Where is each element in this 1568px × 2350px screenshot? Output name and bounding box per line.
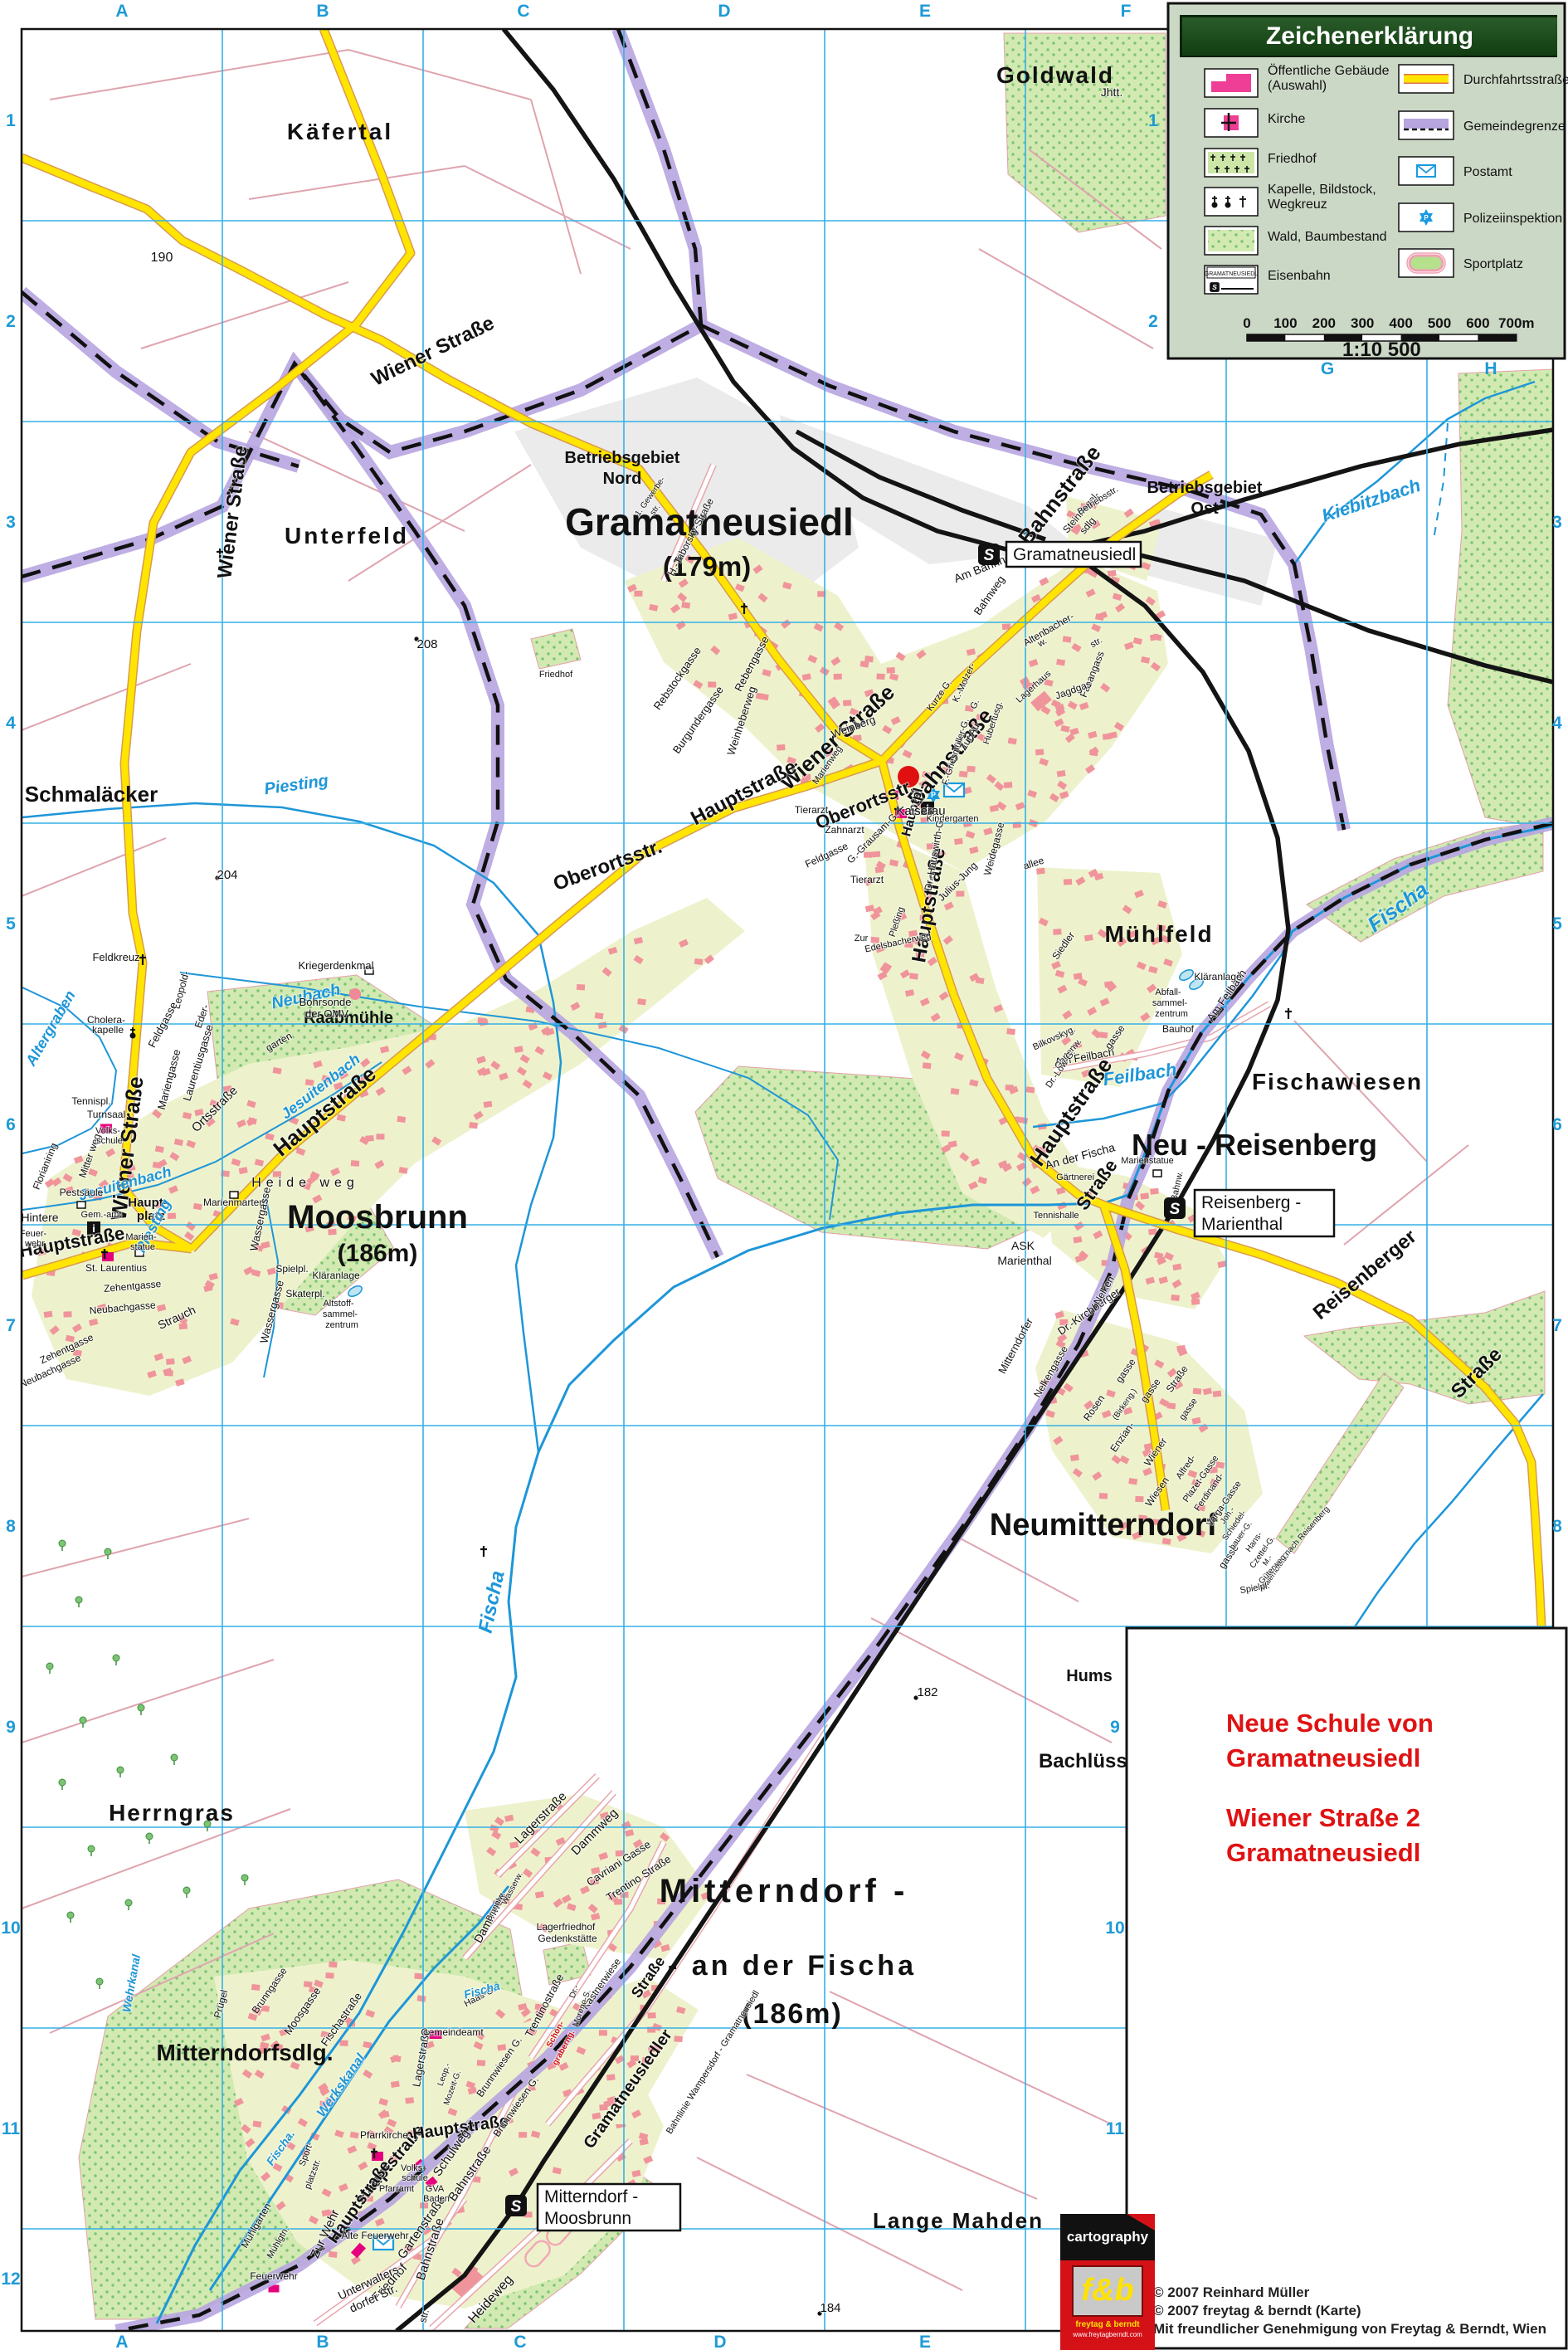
building bbox=[1004, 782, 1013, 788]
station-label: Mitterndorf - bbox=[544, 2187, 638, 2206]
grid-label: 9 bbox=[1110, 1718, 1120, 1737]
building bbox=[1099, 1493, 1108, 1499]
building bbox=[606, 2074, 616, 2080]
building bbox=[777, 744, 785, 751]
building bbox=[959, 771, 968, 778]
building bbox=[864, 656, 874, 662]
map-label: Schmaläcker bbox=[25, 782, 158, 807]
grid-label: B bbox=[316, 2, 329, 21]
building bbox=[325, 1972, 334, 1979]
building bbox=[1191, 1299, 1200, 1305]
building bbox=[405, 2097, 414, 2104]
building bbox=[1171, 1294, 1180, 1301]
legend-item-label: (Auswahl) bbox=[1268, 79, 1327, 93]
building bbox=[1064, 879, 1072, 885]
map-label: Mitterndorfsdlg. bbox=[156, 2040, 333, 2065]
legend-symbol-strasse bbox=[1399, 65, 1454, 93]
map-label: Moosbrunn bbox=[287, 1199, 468, 1236]
legend-symbol-kirche bbox=[1205, 109, 1258, 137]
map-label: (186m) bbox=[742, 1998, 843, 2030]
map-label: Gem.-amt bbox=[81, 1210, 122, 1220]
grid-label: 11 bbox=[2, 2119, 21, 2138]
grid-label: A bbox=[115, 2333, 128, 2350]
scalebar-tick-label: 300 bbox=[1351, 315, 1374, 331]
building bbox=[1053, 929, 1061, 935]
map-label: Tierarzt bbox=[795, 804, 829, 816]
map-label: 184 bbox=[820, 2301, 840, 2315]
map-label: Feuerwehr bbox=[250, 2270, 297, 2282]
scalebar-segment bbox=[1285, 334, 1323, 341]
building bbox=[365, 1135, 373, 1142]
grid-label: E bbox=[919, 2, 931, 21]
map-sheet: PiiKäfertalGoldwaldJhtt.UnterfeldGramatn… bbox=[0, 0, 1568, 2350]
map-label: Ost bbox=[1191, 500, 1219, 518]
scalebar-tick-label: 500 bbox=[1428, 315, 1451, 331]
building bbox=[351, 1160, 359, 1167]
grid-label: 4 bbox=[1552, 714, 1562, 733]
map-art bbox=[1153, 1170, 1161, 1177]
building bbox=[954, 838, 963, 845]
station-label: Marienthal bbox=[1201, 1215, 1283, 1234]
grid-label: A bbox=[115, 2, 128, 21]
map-label: Hintere bbox=[21, 1211, 58, 1224]
legend-symbol-kapelle bbox=[1205, 188, 1258, 216]
map-label: - an der Fischa bbox=[668, 1950, 917, 1982]
grid-label: 5 bbox=[6, 914, 16, 934]
map-label: Abfall- bbox=[1155, 987, 1181, 997]
building bbox=[1104, 981, 1113, 987]
sbahn-station-icon: S bbox=[1164, 1197, 1186, 1219]
grid-label: C bbox=[517, 2, 529, 21]
map-label: Betriebsgebiet bbox=[1147, 479, 1263, 497]
map-art bbox=[46, 1663, 53, 1670]
grid-label: 4 bbox=[6, 714, 16, 733]
map-label: Betriebsgebiet bbox=[565, 449, 680, 467]
map-label: Feldkreuz bbox=[92, 951, 139, 963]
legend-symbol-eisenbahn: GRAMATNEUSIEDLS bbox=[1205, 266, 1259, 294]
grid-label: B bbox=[316, 2333, 329, 2350]
credit-line: © 2007 Reinhard Müller bbox=[1153, 2284, 1551, 2302]
grid-label: 6 bbox=[1552, 1115, 1562, 1134]
map-label: Bohrsonde bbox=[299, 996, 352, 1008]
map-art bbox=[241, 1875, 248, 1881]
map-label: Spielpl. bbox=[275, 1263, 308, 1275]
map-label: Goldwald bbox=[996, 62, 1114, 88]
station-label: Reisenberg - bbox=[1201, 1193, 1301, 1212]
grid-label: C bbox=[514, 2333, 526, 2350]
logo-cartography-label: cartography bbox=[1060, 2214, 1155, 2260]
building bbox=[179, 1323, 187, 1329]
map-label: 190 bbox=[151, 251, 173, 265]
map-label: Fischawiesen bbox=[1252, 1069, 1423, 1095]
sbahn-station-icon: S bbox=[978, 544, 1000, 565]
scalebar-tick-label: 700m bbox=[1498, 315, 1534, 331]
grid-label: 3 bbox=[6, 513, 16, 532]
station-label: Moosbrunn bbox=[544, 2209, 631, 2228]
building bbox=[1150, 1188, 1159, 1195]
building bbox=[634, 591, 642, 597]
map-label: zentrum bbox=[325, 1320, 358, 1330]
scalebar-segment bbox=[1247, 334, 1285, 341]
map-label: Jhtt. bbox=[1101, 85, 1122, 99]
logo-url: www.freytagberndt.com bbox=[1060, 2331, 1155, 2338]
building bbox=[886, 667, 894, 674]
map-art: S bbox=[511, 2198, 522, 2216]
grid-label: 3 bbox=[1552, 513, 1562, 532]
map-label: Mühlfeld bbox=[1104, 921, 1213, 947]
map-label: Käfertal bbox=[287, 119, 393, 144]
scalebar-tick-label: 400 bbox=[1389, 315, 1412, 331]
legend-item-label: Kapelle, Bildstock, bbox=[1268, 183, 1376, 197]
map-art bbox=[75, 1597, 82, 1603]
building bbox=[577, 984, 585, 991]
map-label: Pfarramt bbox=[379, 2184, 414, 2194]
scalebar-segment bbox=[1478, 334, 1516, 341]
legend-title: Zeichenerklärung bbox=[1180, 15, 1557, 57]
annotation-line: Neue Schule von bbox=[1226, 1706, 1550, 1741]
map-label: sammel- bbox=[1152, 998, 1188, 1008]
sbahn-station-icon: S bbox=[1210, 282, 1220, 292]
building bbox=[1006, 1085, 1014, 1091]
logo-fb-monogram: f&b bbox=[1072, 2265, 1143, 2317]
map-label: Lagerfriedhof bbox=[537, 1921, 596, 1933]
publisher-logo: cartography f&b freytag & berndt www.fre… bbox=[1060, 2214, 1155, 2350]
building bbox=[834, 674, 842, 680]
building bbox=[1140, 1192, 1149, 1199]
grid-label: 1 bbox=[6, 111, 16, 130]
map-label: Tennishalle bbox=[1033, 1211, 1079, 1221]
map-label: Zahnarzt bbox=[825, 824, 864, 836]
grid-label: 7 bbox=[1552, 1316, 1562, 1335]
map-label: Hums bbox=[1066, 1667, 1113, 1685]
map-label: Kriegerdenkmal bbox=[298, 959, 373, 972]
building bbox=[484, 1101, 493, 1108]
building bbox=[1063, 636, 1072, 642]
station-label: Gramatneusiedl bbox=[1013, 545, 1136, 564]
map-label: (186m) bbox=[338, 1240, 418, 1267]
map-label: Marienmarterl bbox=[203, 1197, 265, 1208]
legend-symbol-public bbox=[1205, 69, 1258, 97]
legend-item-label: Gemeindegrenze bbox=[1463, 119, 1566, 134]
grid-label: D bbox=[718, 2, 730, 21]
grid-label: 1 bbox=[1148, 111, 1158, 130]
grid-label: 10 bbox=[1, 1919, 20, 1938]
grid-label: 7 bbox=[6, 1316, 16, 1335]
map-label: schule bbox=[96, 1136, 123, 1146]
map-art bbox=[125, 1899, 132, 1906]
map-art: S bbox=[984, 547, 995, 564]
scalebar-segment bbox=[1439, 334, 1478, 341]
map-label: Unterfeld bbox=[285, 523, 409, 548]
map-label: Volks- bbox=[95, 1126, 120, 1136]
legend-item-label: Wegkreuz bbox=[1268, 197, 1327, 212]
map-label: Mitterndorf - bbox=[660, 1873, 909, 1909]
map-art bbox=[67, 1912, 74, 1919]
map-art: S bbox=[1212, 283, 1217, 291]
map-art bbox=[1212, 202, 1218, 208]
building bbox=[599, 2030, 607, 2036]
map-label: Baden bbox=[423, 2194, 450, 2204]
grid-label: 8 bbox=[6, 1517, 16, 1536]
map-label: wehr bbox=[24, 1239, 45, 1249]
map-label: Tennispl. bbox=[71, 1095, 110, 1107]
map-art bbox=[96, 1978, 103, 1985]
legend-symbol-post bbox=[1399, 157, 1454, 185]
grid-label: 6 bbox=[6, 1115, 16, 1134]
school-annotation: Neue Schule von Gramatneusiedl Wiener St… bbox=[1226, 1706, 1550, 1895]
map-label: zentrum bbox=[1155, 1009, 1188, 1019]
map-art bbox=[138, 1704, 144, 1711]
map-label: St. Laurentius bbox=[85, 1262, 147, 1274]
building bbox=[1108, 570, 1117, 577]
building bbox=[876, 673, 884, 680]
legend-symbol-polizei: P bbox=[1399, 203, 1454, 232]
building bbox=[951, 1088, 960, 1095]
legend-item-label: Kirche bbox=[1268, 112, 1305, 126]
legend-item-label: Wald, Baumbestand bbox=[1268, 230, 1386, 244]
map-art bbox=[88, 1845, 95, 1852]
legend-item-label: Sportplatz bbox=[1463, 257, 1523, 271]
logo-publisher-name: freytag & berndt bbox=[1060, 2320, 1155, 2329]
building bbox=[166, 1358, 175, 1365]
map-art bbox=[183, 1887, 190, 1894]
building bbox=[843, 700, 851, 706]
building bbox=[1193, 1388, 1202, 1395]
map-label: statue bbox=[130, 1242, 155, 1252]
grid-label: 5 bbox=[1552, 914, 1562, 934]
map-label: Kläranlage bbox=[312, 1270, 360, 1281]
map-label: Marienstatue bbox=[1121, 1156, 1174, 1166]
building bbox=[519, 2132, 527, 2138]
building bbox=[637, 998, 646, 1005]
building bbox=[923, 1062, 932, 1069]
map-canvas: PiiKäfertalGoldwaldJhtt.UnterfeldGramatn… bbox=[0, 0, 1568, 2350]
map-label: Altstoff- bbox=[323, 1299, 353, 1309]
map-label: Lange Mahden bbox=[873, 2208, 1044, 2233]
map-label: Friedhof bbox=[539, 670, 573, 680]
map-label: Zur bbox=[855, 934, 869, 943]
legend-item-label: Polizeiinspektion bbox=[1463, 212, 1562, 226]
map-label: Pfarrkirche bbox=[360, 2129, 408, 2141]
building bbox=[376, 1134, 384, 1139]
map-art bbox=[105, 1548, 111, 1555]
grid-label: G bbox=[1321, 359, 1334, 378]
legend-item-label: Öffentliche Gebäude bbox=[1268, 63, 1390, 78]
map-art bbox=[146, 1833, 153, 1840]
legend-symbol-wald bbox=[1205, 227, 1258, 255]
map-label: Feuer- bbox=[20, 1229, 47, 1239]
copyright-credits: © 2007 Reinhard Müller © 2007 freytag & … bbox=[1153, 2284, 1551, 2338]
building bbox=[595, 1012, 604, 1019]
building bbox=[1006, 1028, 1015, 1035]
map-label: 204 bbox=[217, 868, 237, 882]
grid-label: 9 bbox=[6, 1718, 16, 1737]
grid-label: H bbox=[1484, 359, 1497, 378]
scalebar-tick-label: 100 bbox=[1273, 315, 1297, 331]
legend-item-label: Durchfahrtsstraße bbox=[1463, 73, 1568, 87]
map-label: Gedenkstätte bbox=[538, 1933, 597, 1944]
map-label: Alte Feuerwehr bbox=[341, 2230, 408, 2241]
map-art bbox=[1208, 230, 1254, 251]
logo-wedge bbox=[1127, 2214, 1155, 2231]
annotation-line: Wiener Straße 2 bbox=[1226, 1801, 1550, 1836]
map-label: Marienthal bbox=[997, 1254, 1051, 1267]
legend-station-sample: GRAMATNEUSIEDL bbox=[1205, 271, 1259, 277]
map-label: schule bbox=[402, 2173, 428, 2183]
map-art bbox=[1410, 256, 1443, 271]
map-label: Herrngras bbox=[109, 1800, 235, 1826]
map-art bbox=[113, 1655, 119, 1661]
map-label: sammel- bbox=[323, 1309, 358, 1319]
map-label: Pestsäule bbox=[60, 1187, 104, 1198]
credit-line: Mit freundlicher Genehmigung von Freytag… bbox=[1153, 2320, 1551, 2338]
building bbox=[647, 2012, 655, 2018]
map-label: GVA bbox=[426, 2184, 445, 2194]
map-label: Kläranlage bbox=[1194, 971, 1242, 982]
map-label: Turnsaal bbox=[87, 1109, 125, 1120]
building bbox=[872, 851, 881, 858]
building bbox=[1025, 1086, 1035, 1093]
annotation-line: Gramatneusiedl bbox=[1226, 1836, 1550, 1870]
grid-label: 2 bbox=[6, 312, 16, 331]
building bbox=[1035, 748, 1045, 755]
map-label: Gärtnerei bbox=[1056, 1173, 1094, 1182]
map-label: Marien- bbox=[125, 1232, 157, 1242]
scale-ratio: 1:10 500 bbox=[1342, 339, 1421, 361]
building bbox=[329, 2251, 338, 2258]
map-art bbox=[171, 1754, 178, 1761]
building bbox=[469, 1122, 478, 1129]
annotation-line: Gramatneusiedl bbox=[1226, 1741, 1550, 1776]
building bbox=[967, 766, 976, 773]
monument-icon bbox=[1153, 1170, 1161, 1177]
grid-label: 11 bbox=[1106, 2119, 1125, 2138]
building bbox=[942, 1130, 950, 1136]
legend-symbol-grenze bbox=[1399, 111, 1454, 139]
map-art: P bbox=[1424, 214, 1429, 222]
grid-label: 10 bbox=[1105, 1919, 1124, 1938]
map-label: kapelle bbox=[92, 1024, 124, 1036]
map-label: Skaterpl. bbox=[285, 1288, 324, 1299]
grid-label: 8 bbox=[1552, 1517, 1562, 1536]
building bbox=[329, 1961, 338, 1967]
map-art bbox=[59, 1540, 66, 1547]
legend-symbol-friedhof bbox=[1205, 149, 1258, 177]
map-art bbox=[1225, 202, 1231, 208]
sbahn-station-icon: S bbox=[505, 2195, 527, 2216]
map-label: der OMV bbox=[305, 1007, 348, 1020]
building bbox=[956, 891, 964, 897]
map-label: 208 bbox=[416, 637, 437, 651]
map-label: Neumitterndorf bbox=[990, 1508, 1218, 1543]
scalebar-tick-label: 200 bbox=[1312, 315, 1336, 331]
scalebar-tick-label: 0 bbox=[1243, 315, 1250, 331]
grid-label: F bbox=[1121, 2, 1132, 21]
building bbox=[1213, 1391, 1222, 1397]
grid-label: E bbox=[919, 2333, 931, 2350]
map-label: Volks- bbox=[401, 2163, 426, 2173]
map-label: Bauhof bbox=[1162, 1023, 1195, 1035]
map-label: ASK bbox=[1011, 1239, 1035, 1252]
building bbox=[339, 2040, 348, 2046]
map-label: Nord bbox=[603, 470, 642, 488]
map-art: S bbox=[1170, 1201, 1181, 1218]
map-label: Tierarzt bbox=[850, 874, 884, 885]
building bbox=[694, 958, 704, 965]
grid-label: 12 bbox=[1, 2270, 20, 2289]
building bbox=[414, 1973, 423, 1980]
map-art bbox=[59, 1779, 66, 1786]
scalebar-tick-label: 600 bbox=[1466, 315, 1489, 331]
building bbox=[251, 1984, 261, 1991]
building bbox=[63, 1311, 71, 1317]
map-label: Bachlüsse bbox=[1039, 1750, 1138, 1772]
grid-label: D bbox=[713, 2333, 726, 2350]
legend-item-label: Postamt bbox=[1463, 165, 1512, 179]
map-art bbox=[1205, 188, 1258, 216]
legend-item-label: Eisenbahn bbox=[1268, 269, 1331, 283]
legend-item-label: Friedhof bbox=[1268, 152, 1317, 166]
grid-label: 2 bbox=[1148, 312, 1158, 331]
building bbox=[477, 2060, 485, 2066]
legend-symbol-sport bbox=[1399, 249, 1454, 277]
map-label: 182 bbox=[917, 1685, 937, 1699]
credit-line: © 2007 freytag & berndt (Karte) bbox=[1153, 2302, 1551, 2320]
map-art bbox=[117, 1767, 124, 1773]
building bbox=[1036, 868, 1045, 875]
logo-fb-block: f&b freytag & berndt www.freytagberndt.c… bbox=[1060, 2260, 1155, 2350]
map-art bbox=[80, 1717, 86, 1723]
building bbox=[909, 973, 918, 979]
